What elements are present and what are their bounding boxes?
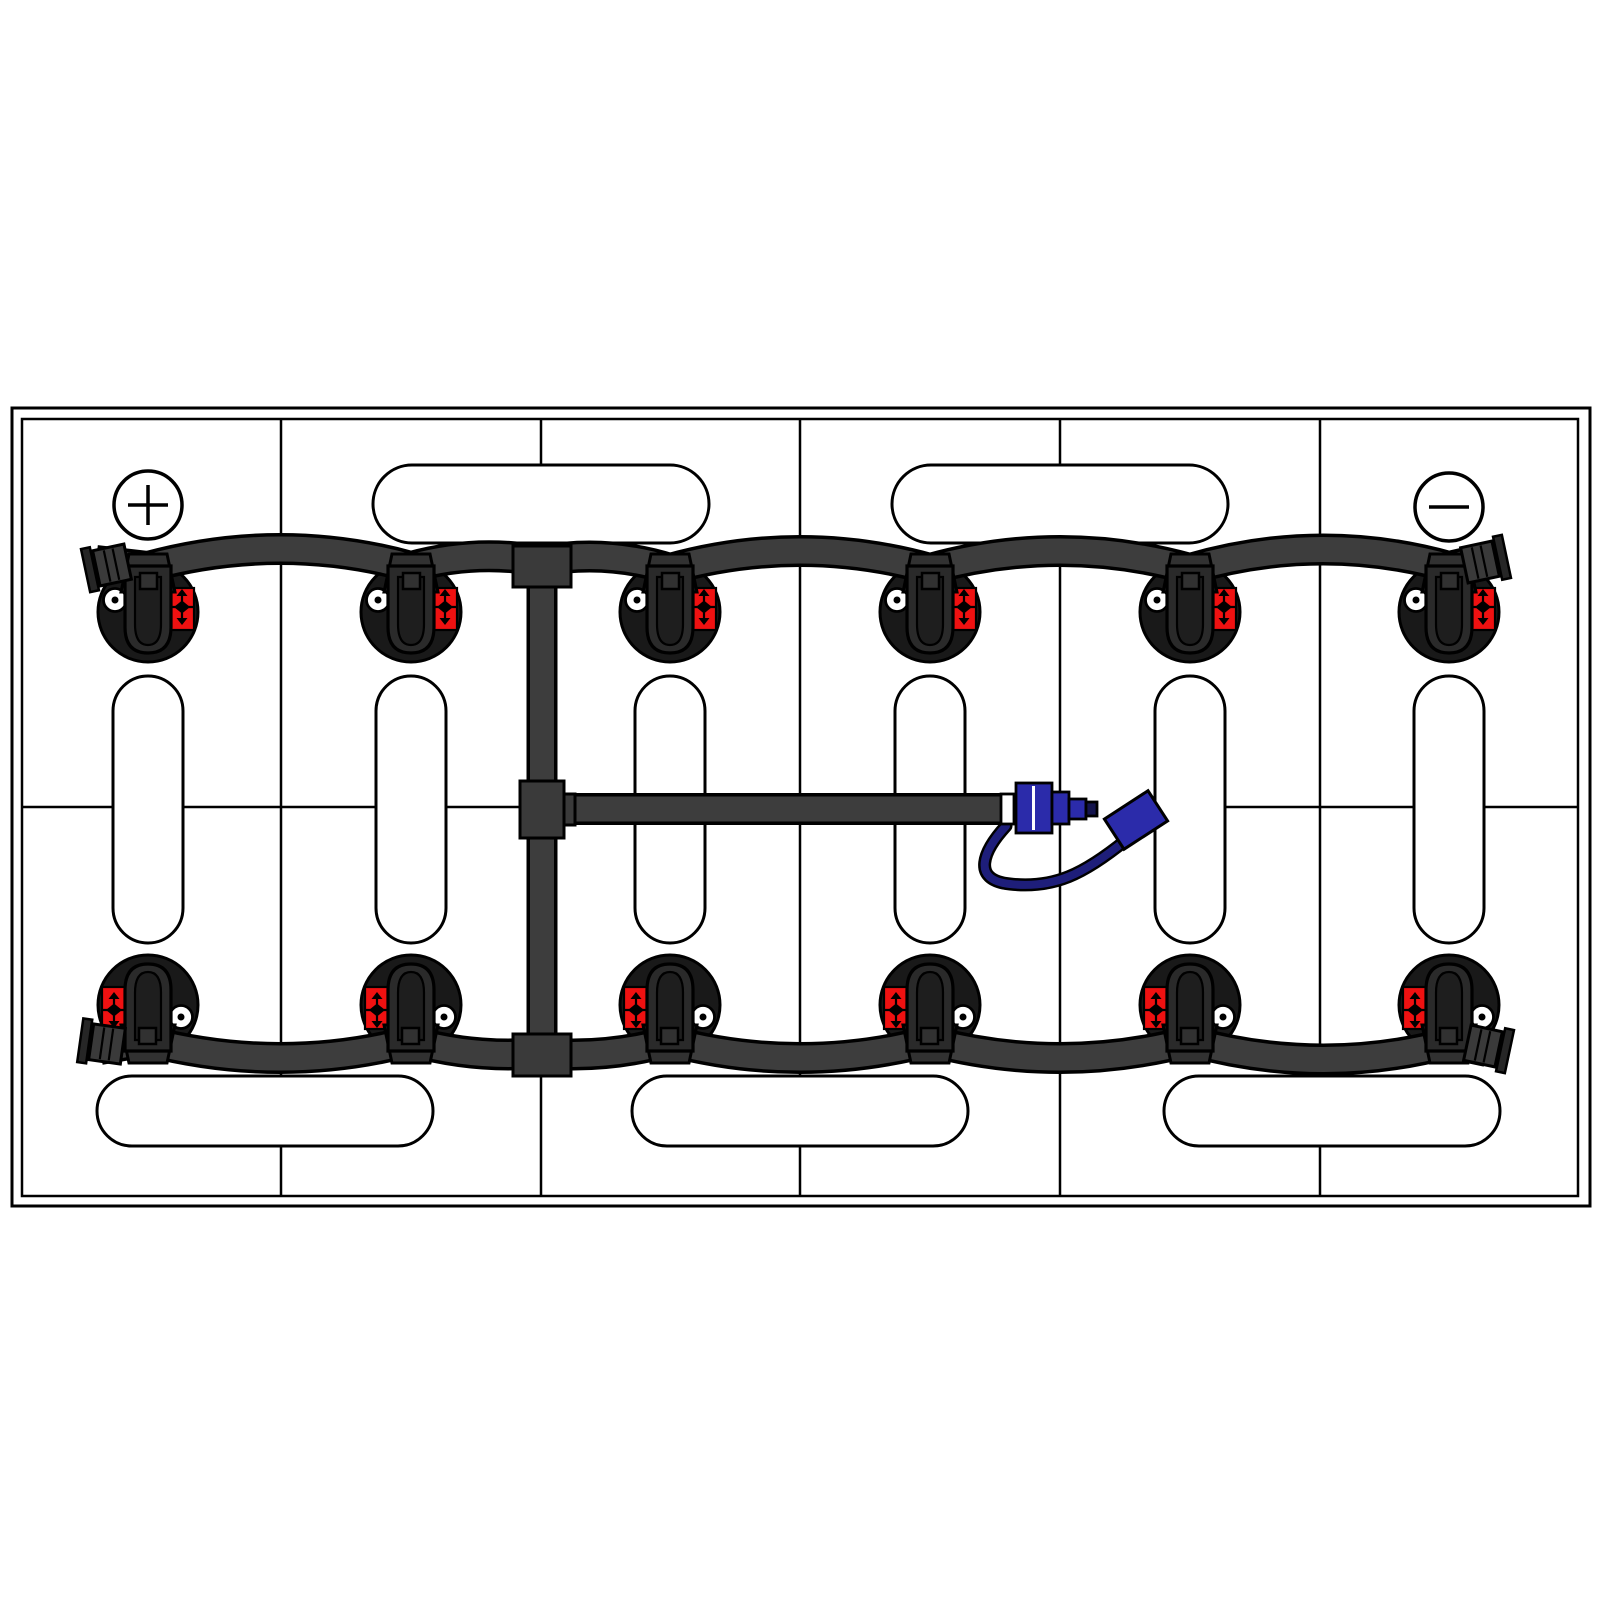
coupler-collar (1001, 794, 1014, 824)
float-window-dot-center (894, 597, 901, 604)
float-window-dot-center (1154, 597, 1161, 604)
float-window-dot-center (112, 597, 119, 604)
bottom-manifold-tube (100, 1041, 1487, 1060)
float-window-dot-center (441, 1014, 448, 1021)
watering-cap-bottom-4 (903, 964, 957, 1063)
fill-indicator-pill-top (892, 465, 1228, 543)
valve-hinge-notch (922, 573, 939, 589)
float-window-dot-center (1220, 1014, 1227, 1021)
fill-indicator-pill-bottom (632, 1076, 968, 1146)
float-window-dot-center (1413, 597, 1420, 604)
coupler-step-1 (1052, 792, 1069, 824)
float-window-dot-center (960, 1014, 967, 1021)
cross-fitting-collar (564, 794, 575, 825)
battery-watering-system-diagram (0, 0, 1600, 1600)
valve-hinge-notch (662, 573, 679, 589)
negative-terminal (1415, 473, 1483, 541)
fill-indicator-pill-bottom (97, 1076, 433, 1146)
valve-hinge-notch (140, 573, 157, 589)
fill-indicator-pill-top (373, 465, 709, 543)
valve-hinge-notch (403, 573, 420, 589)
float-window-dot-center (634, 597, 641, 604)
watering-cap-top-3 (643, 554, 697, 653)
watering-cap-bottom-2 (384, 964, 438, 1063)
valve-hinge-notch (1441, 573, 1458, 589)
watering-cap-top-5 (1163, 554, 1217, 653)
valve-hinge-notch (139, 1028, 156, 1044)
tee-fitting-bottom (513, 1034, 571, 1076)
tee-fitting-top (513, 546, 571, 587)
fill-indicator-pill-middle (113, 676, 183, 943)
watering-cap-bottom-3 (643, 964, 697, 1063)
coupler-nipple (1086, 802, 1097, 816)
float-window-dot-center (1479, 1014, 1486, 1021)
watering-cap-top-4 (903, 554, 957, 653)
valve-hinge-notch (402, 1028, 419, 1044)
valve-hinge-notch (921, 1028, 938, 1044)
float-window-dot-center (178, 1014, 185, 1021)
valve-hinge-notch (1181, 1028, 1198, 1044)
plug-body (89, 1024, 126, 1064)
watering-cap-top-2 (384, 554, 438, 653)
coupler-step-2 (1069, 799, 1086, 819)
fill-indicator-pill-middle (376, 676, 446, 943)
valve-hinge-notch (1182, 573, 1199, 589)
cross-fitting (520, 781, 564, 838)
valve-hinge-notch (661, 1028, 678, 1044)
positive-terminal (114, 471, 182, 539)
float-window-dot-center (700, 1014, 707, 1021)
fill-indicator-pill-middle (1155, 676, 1225, 943)
fill-indicator-pill-bottom (1164, 1076, 1500, 1146)
valve-hinge-notch (1440, 1028, 1457, 1044)
watering-cap-bottom-5 (1163, 964, 1217, 1063)
battery-watering-diagram-page (0, 0, 1600, 1600)
fill-indicator-pill-middle (1414, 676, 1484, 943)
watering-cap-bottom-1 (121, 964, 175, 1063)
float-window-dot-center (375, 597, 382, 604)
